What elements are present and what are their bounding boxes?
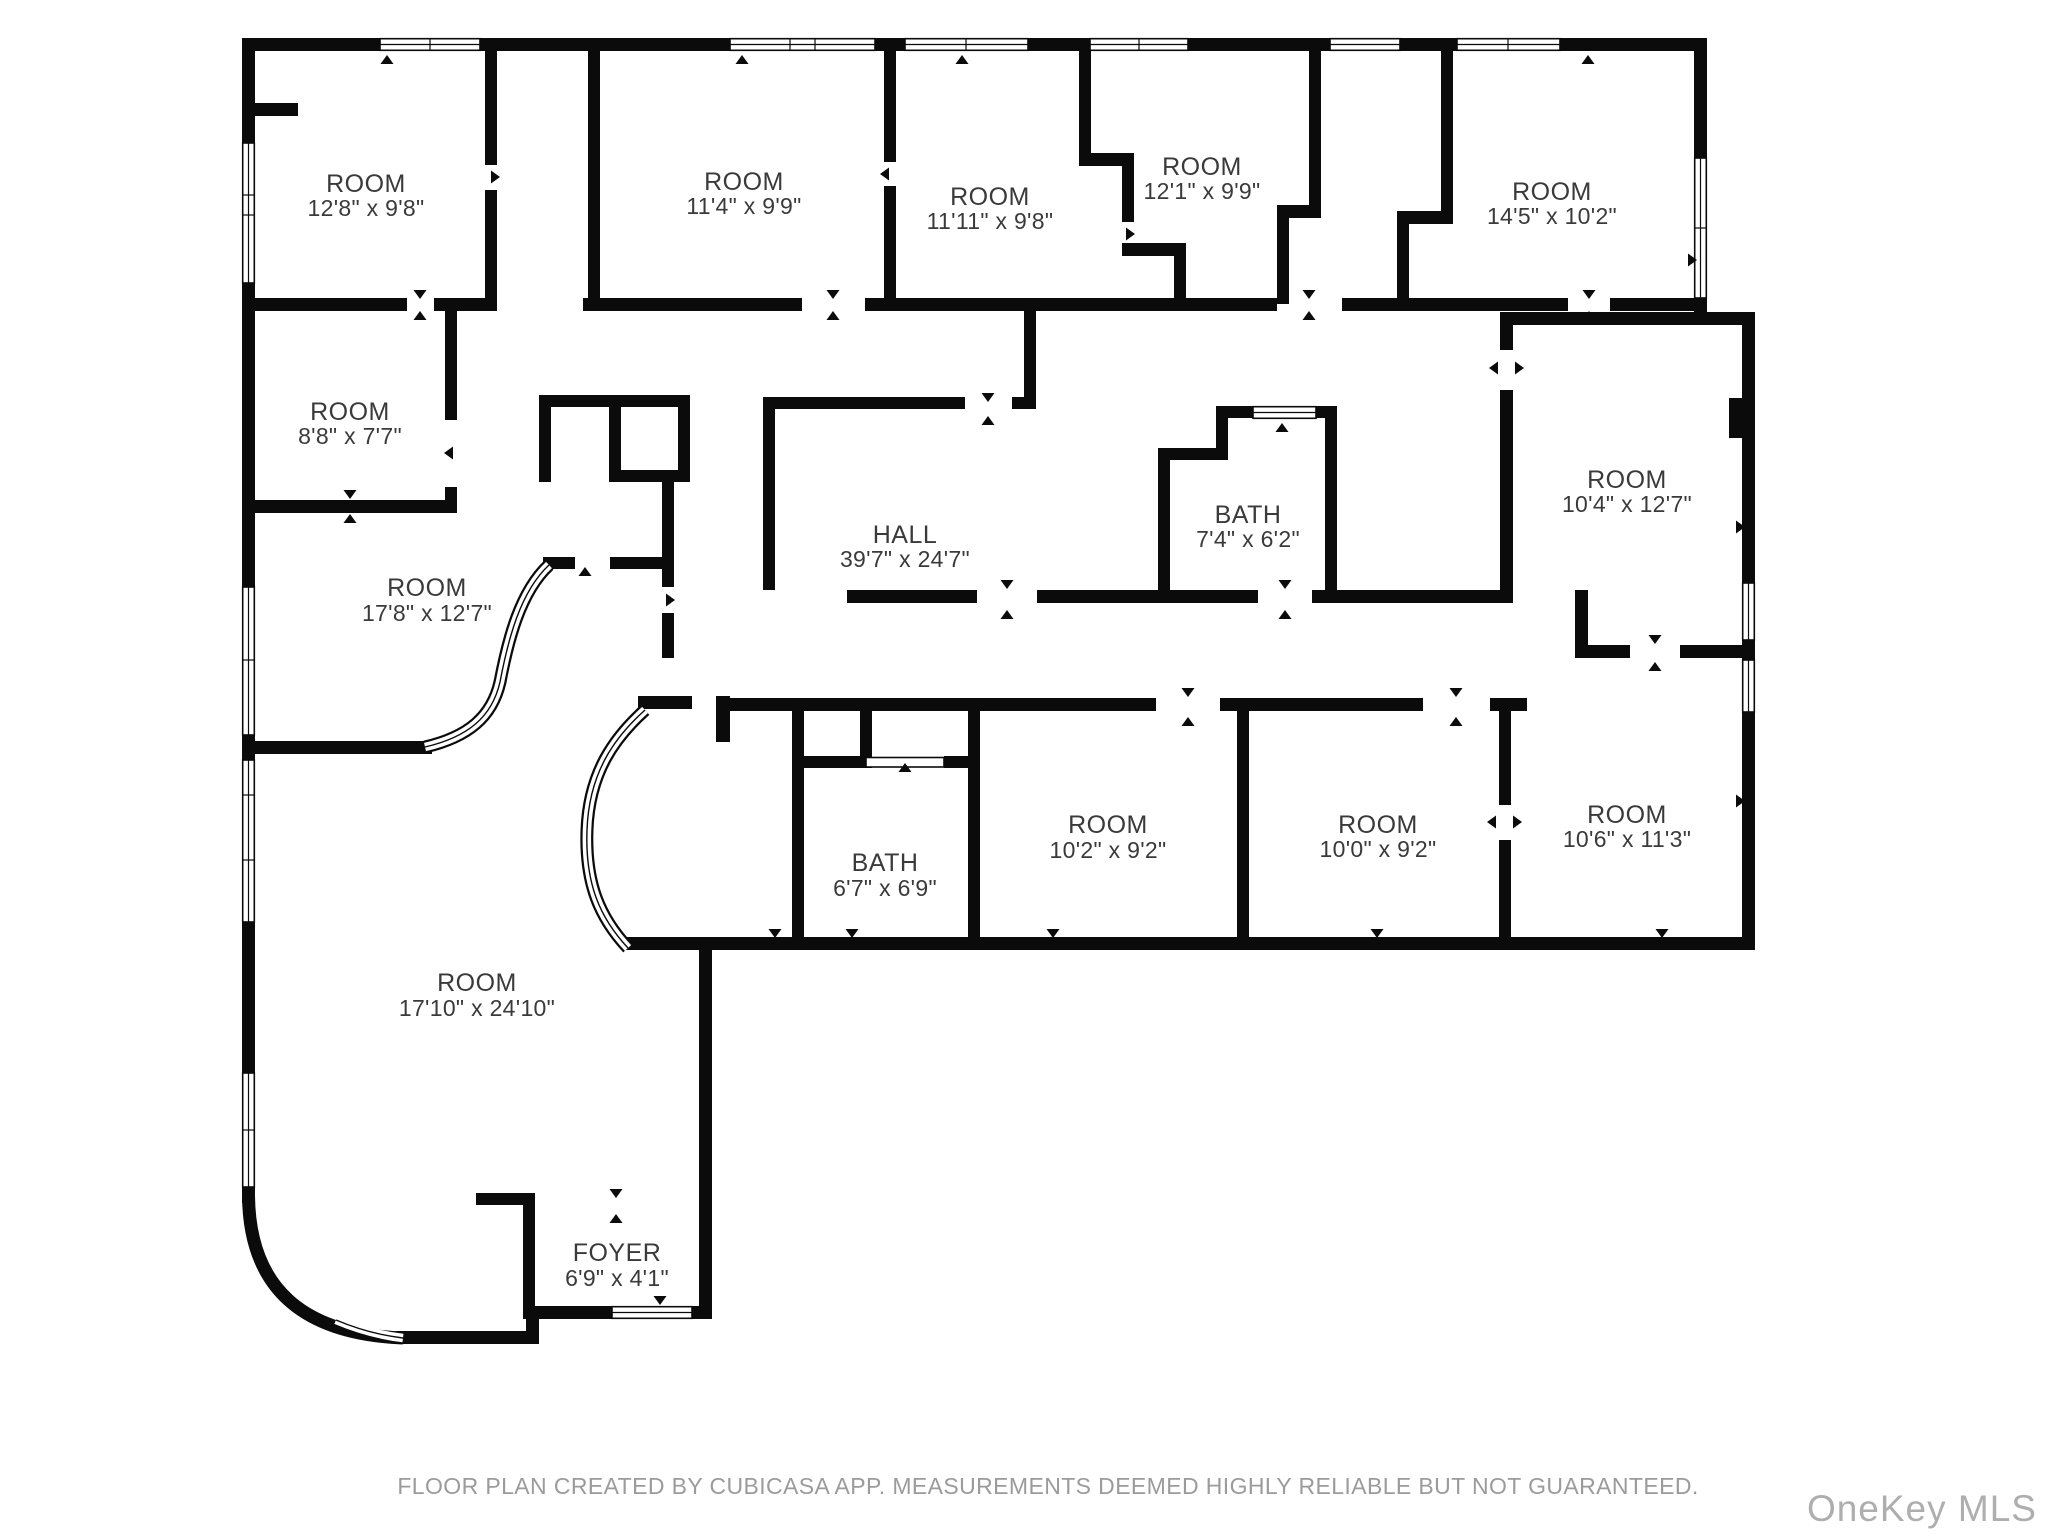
room-dims: 10'0" x 9'2" xyxy=(1320,836,1437,862)
curved-window-walls xyxy=(249,565,646,1338)
room-label: ROOM xyxy=(1512,178,1592,206)
room-dims: 39'7" x 24'7" xyxy=(840,546,970,572)
room-label: ROOM xyxy=(310,398,390,426)
room-dims: 10'2" x 9'2" xyxy=(1050,837,1167,863)
room-label: ROOM xyxy=(1587,801,1667,829)
room-dims: 12'1" x 9'9" xyxy=(1144,178,1261,204)
room-dims: 10'6" x 11'3" xyxy=(1563,826,1691,852)
room-dims: 11'4" x 9'9" xyxy=(686,193,801,219)
room-dims: 8'8" x 7'7" xyxy=(298,423,402,449)
room-label: FOYER xyxy=(573,1239,662,1267)
room-label: BATH xyxy=(1215,501,1282,529)
watermark-logo: OneKey MLS xyxy=(1807,1488,2037,1529)
room-label: ROOM xyxy=(1068,811,1148,839)
floorplan-page: ROOM 12'8" x 9'8" ROOM 11'4" x 9'9" ROOM… xyxy=(0,0,2048,1536)
room-label: BATH xyxy=(852,849,919,877)
bay-arc-wall xyxy=(249,1196,404,1338)
room-label: ROOM xyxy=(704,168,784,196)
room-label: ROOM xyxy=(387,574,467,602)
room-dims: 10'4" x 12'7" xyxy=(1562,491,1692,517)
room-label: ROOM xyxy=(437,969,517,997)
room-label: ROOM xyxy=(1338,811,1418,839)
room-label: ROOM xyxy=(326,170,406,198)
footer-disclaimer: FLOOR PLAN CREATED BY CUBICASA APP. MEAS… xyxy=(397,1473,1698,1499)
room-dims: 12'8" x 9'8" xyxy=(308,195,425,221)
room-label: ROOM xyxy=(1587,466,1667,494)
room-dims: 6'7" x 6'9" xyxy=(833,875,937,901)
room-label: HALL xyxy=(873,521,938,549)
room-label: ROOM xyxy=(1162,153,1242,181)
room-label: ROOM xyxy=(950,183,1030,211)
room-dims: 17'10" x 24'10" xyxy=(399,995,555,1021)
door-markers xyxy=(344,55,1746,1305)
floorplan-drawing: ROOM 12'8" x 9'8" ROOM 11'4" x 9'9" ROOM… xyxy=(0,0,2048,1536)
room-dims: 17'8" x 12'7" xyxy=(362,600,492,626)
room-dims: 14'5" x 10'2" xyxy=(1487,203,1617,229)
room-dims: 6'9" x 4'1" xyxy=(565,1265,669,1291)
room-dims: 7'4" x 6'2" xyxy=(1196,526,1300,552)
room-dims: 11'11" x 9'8" xyxy=(927,208,1054,234)
room-labels: ROOM 12'8" x 9'8" ROOM 11'4" x 9'9" ROOM… xyxy=(298,153,1692,1291)
